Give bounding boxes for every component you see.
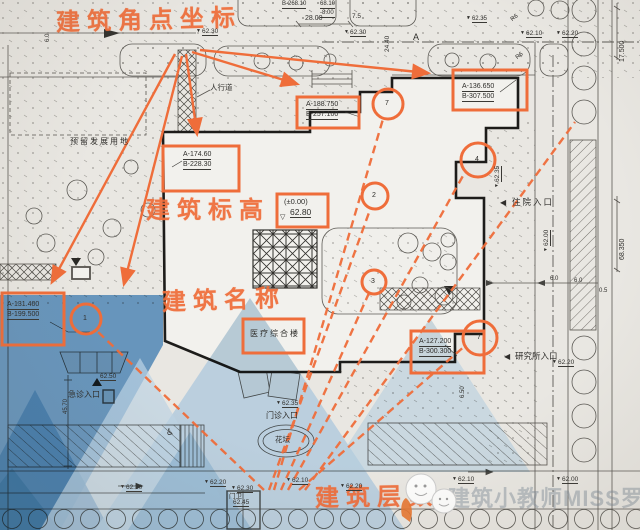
- watermark-stickers: [392, 470, 472, 530]
- mascot-icon: [401, 498, 412, 522]
- screenshot-root: 建筑角点坐标 建筑标高 建筑名称 建筑小教师MISS罗 建筑层数 A-131.4…: [0, 0, 640, 530]
- site-plan-drawing: [0, 0, 640, 530]
- emoji-sticker-icon: [432, 489, 456, 513]
- emoji-sticker-icon: [406, 474, 436, 504]
